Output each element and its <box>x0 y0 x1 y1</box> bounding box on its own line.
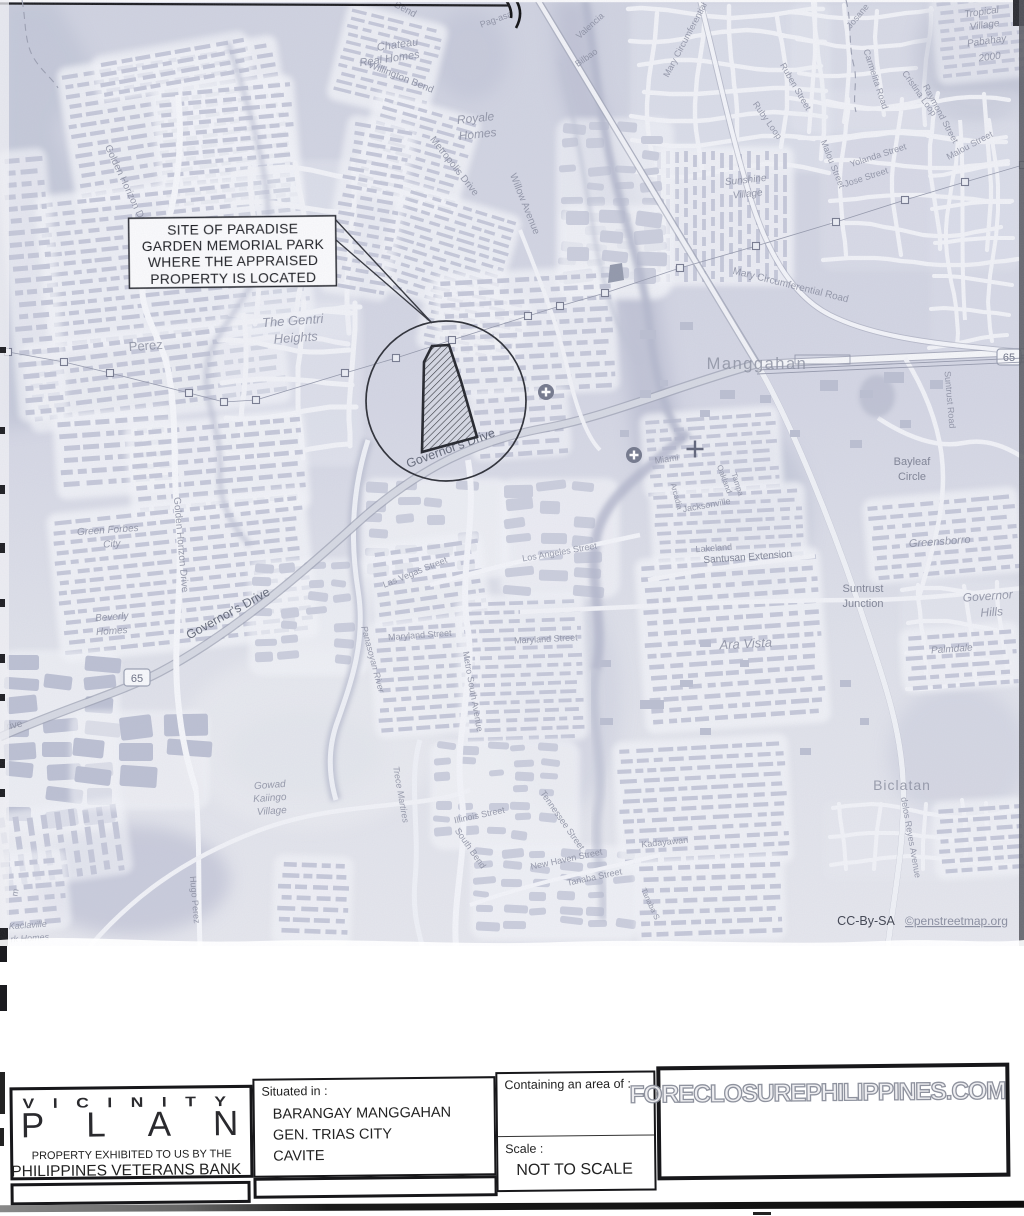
svg-text:FORECLOSUREPHILIPPINES.COM: FORECLOSUREPHILIPPINES.COM <box>629 1077 1005 1108</box>
